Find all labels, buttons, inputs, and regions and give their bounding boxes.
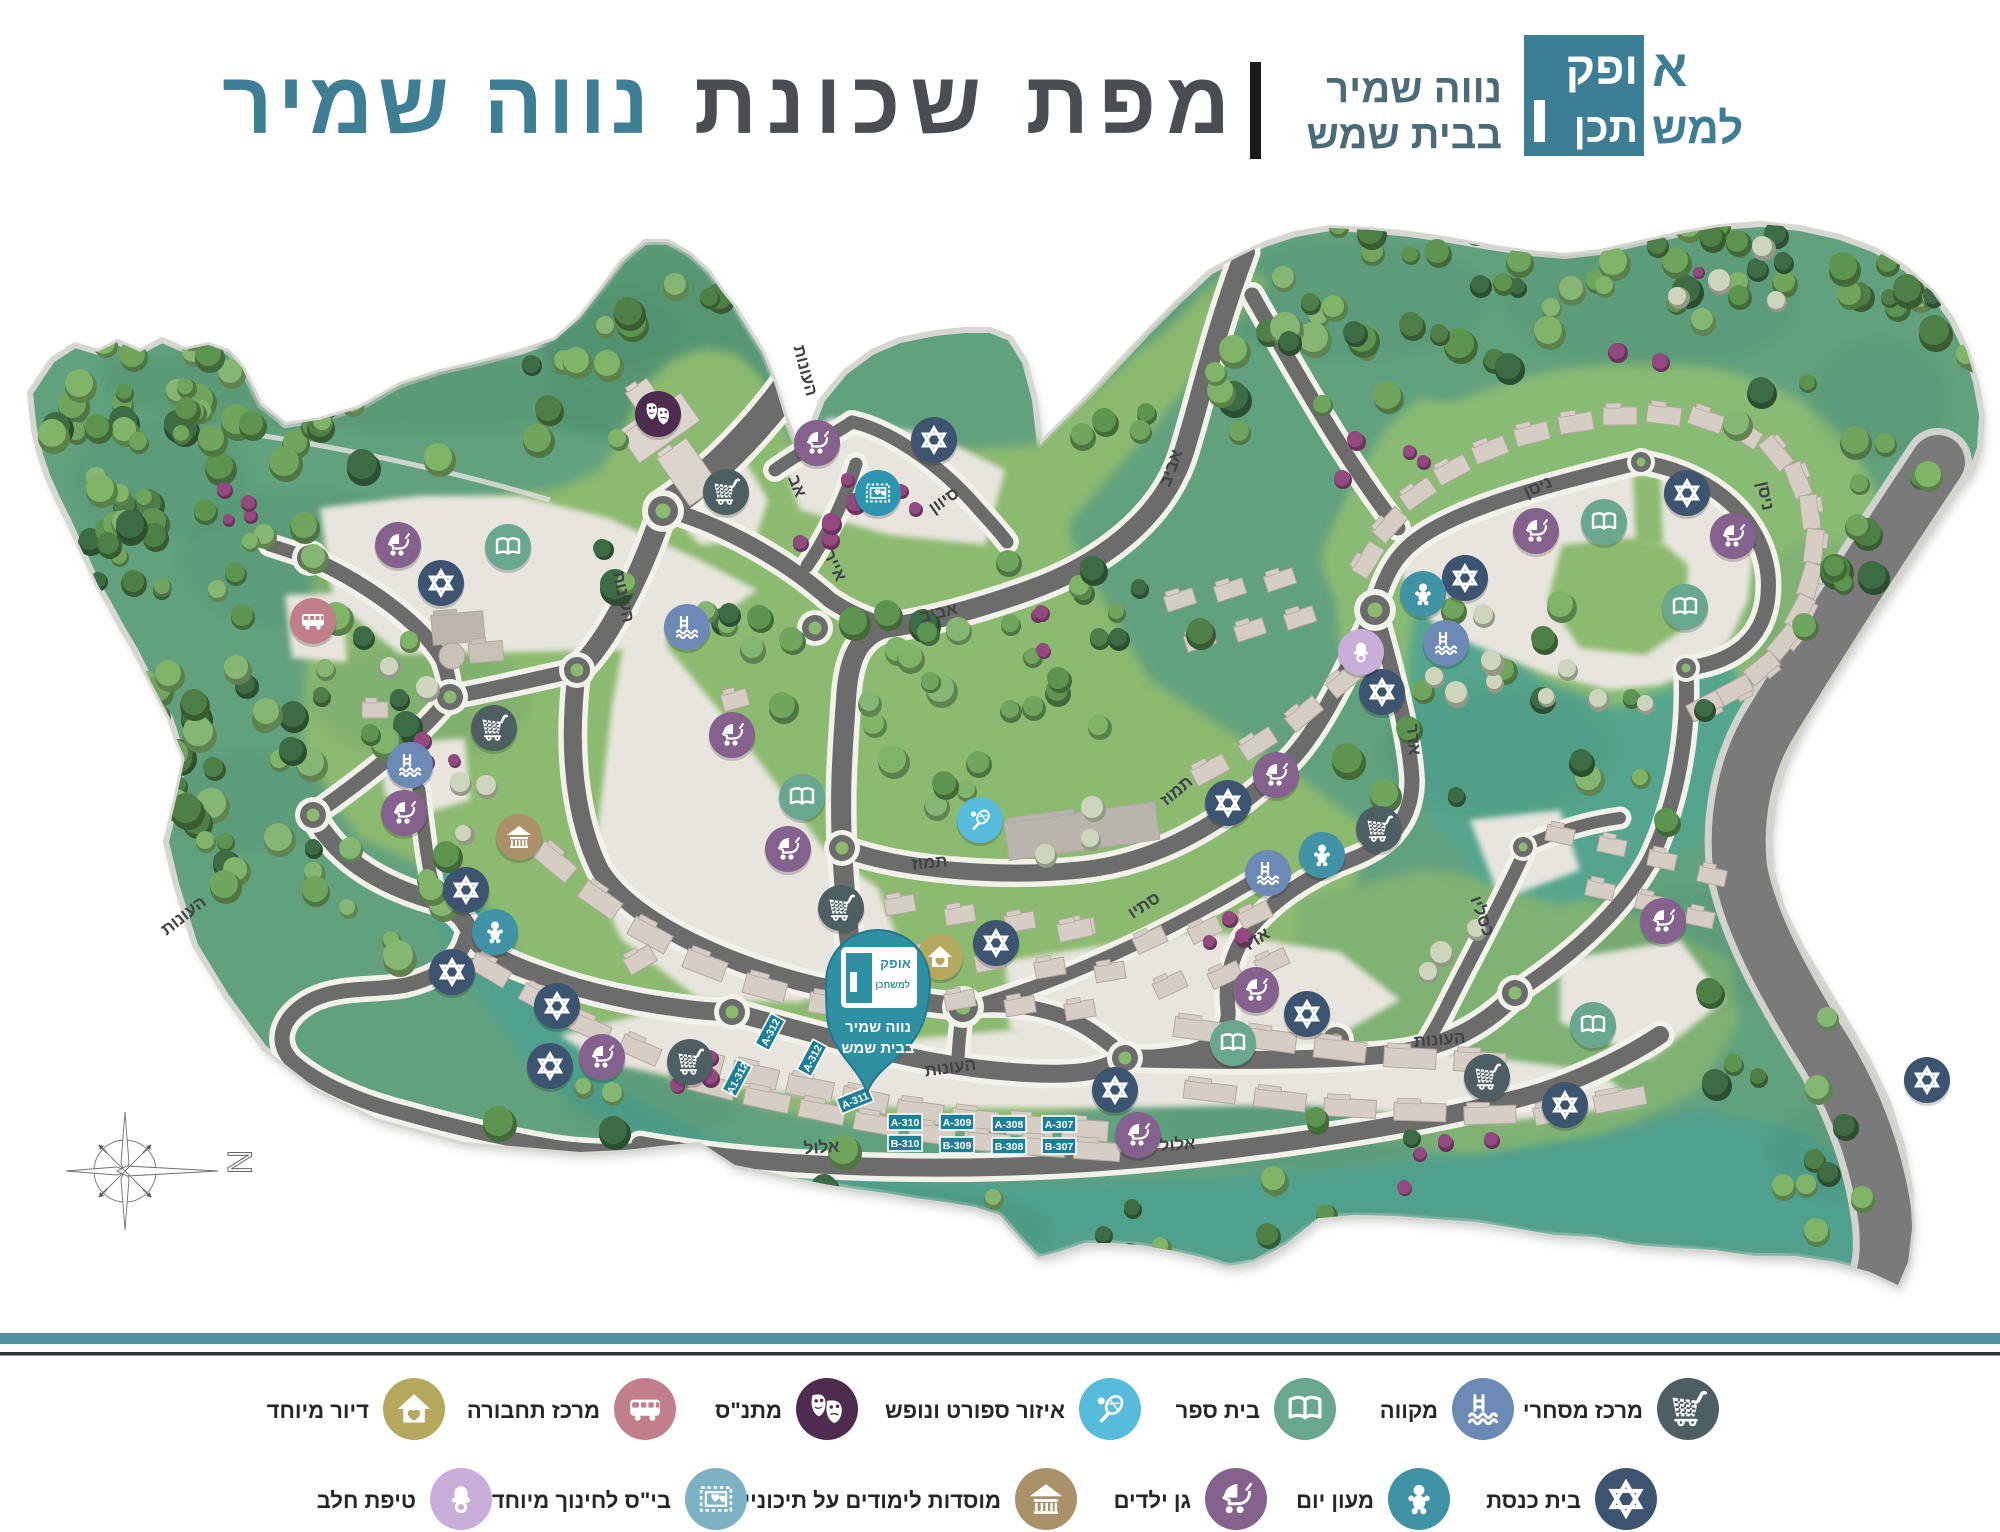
- svg-text:מרכז תחבורה: מרכז תחבורה: [467, 1398, 600, 1423]
- svg-text:B-308: B-308: [995, 1141, 1024, 1153]
- svg-text:A-309: A-309: [943, 1117, 972, 1129]
- svg-text:מתנ"ס: מתנ"ס: [715, 1398, 782, 1423]
- svg-text:טיפת חלב: טיפת חלב: [317, 1488, 416, 1513]
- svg-text:למשתכן: למשתכן: [875, 980, 910, 991]
- svg-text:מרכז מסחרי: מרכז מסחרי: [1523, 1398, 1643, 1423]
- svg-text:נווה שמיר: נווה שמיר: [222, 53, 654, 152]
- svg-text:נווה שמיר: נווה שמיר: [845, 1019, 911, 1036]
- svg-text:אופק: אופק: [880, 956, 911, 971]
- svg-text:א: א: [1652, 40, 1687, 98]
- svg-text:אדר: אדר: [1403, 723, 1425, 756]
- svg-text:בי"ס לחינוך מיוחד: בי"ס לחינוך מיוחד: [492, 1488, 671, 1513]
- svg-text:מעון יום: מעון יום: [1296, 1488, 1374, 1513]
- svg-text:B-310: B-310: [891, 1138, 920, 1150]
- svg-text:תמוז: תמוז: [911, 851, 948, 873]
- svg-text:A-308: A-308: [995, 1119, 1024, 1131]
- svg-text:דיור מיוחד: דיור מיוחד: [267, 1398, 370, 1423]
- svg-text:נווה שמיר: נווה שמיר: [1326, 67, 1502, 111]
- svg-text:A-310: A-310: [891, 1117, 920, 1129]
- svg-text:איזור ספורט ונופש: איזור ספורט ונופש: [885, 1398, 1065, 1423]
- svg-text:A-307: A-307: [1045, 1119, 1074, 1131]
- svg-text:אלול: אלול: [1159, 1134, 1196, 1155]
- svg-text:בבית שמש: בבית שמש: [1307, 113, 1502, 157]
- svg-text:בבית שמש: בבית שמש: [841, 1040, 915, 1057]
- svg-text:מקווה: מקווה: [1380, 1398, 1438, 1423]
- svg-text:למש: למש: [1652, 104, 1743, 153]
- svg-text:B-309: B-309: [943, 1140, 972, 1152]
- svg-text:מפת שכונת: מפת שכונת: [694, 53, 1240, 152]
- svg-text:בית ספר: בית ספר: [1176, 1398, 1260, 1423]
- svg-text:מוסדות לימודים על תיכוניים: מוסדות לימודים על תיכוניים: [728, 1488, 1001, 1513]
- svg-text:גן ילדים: גן ילדים: [1114, 1488, 1191, 1513]
- svg-text:B-307: B-307: [1045, 1141, 1074, 1153]
- svg-text:N: N: [220, 1150, 258, 1175]
- svg-text:אלול: אלול: [803, 1137, 840, 1158]
- svg-text:בית כנסת: בית כנסת: [1486, 1488, 1581, 1513]
- svg-text:תכן: תכן: [1574, 105, 1638, 151]
- svg-text:ופק: ופק: [1566, 43, 1638, 94]
